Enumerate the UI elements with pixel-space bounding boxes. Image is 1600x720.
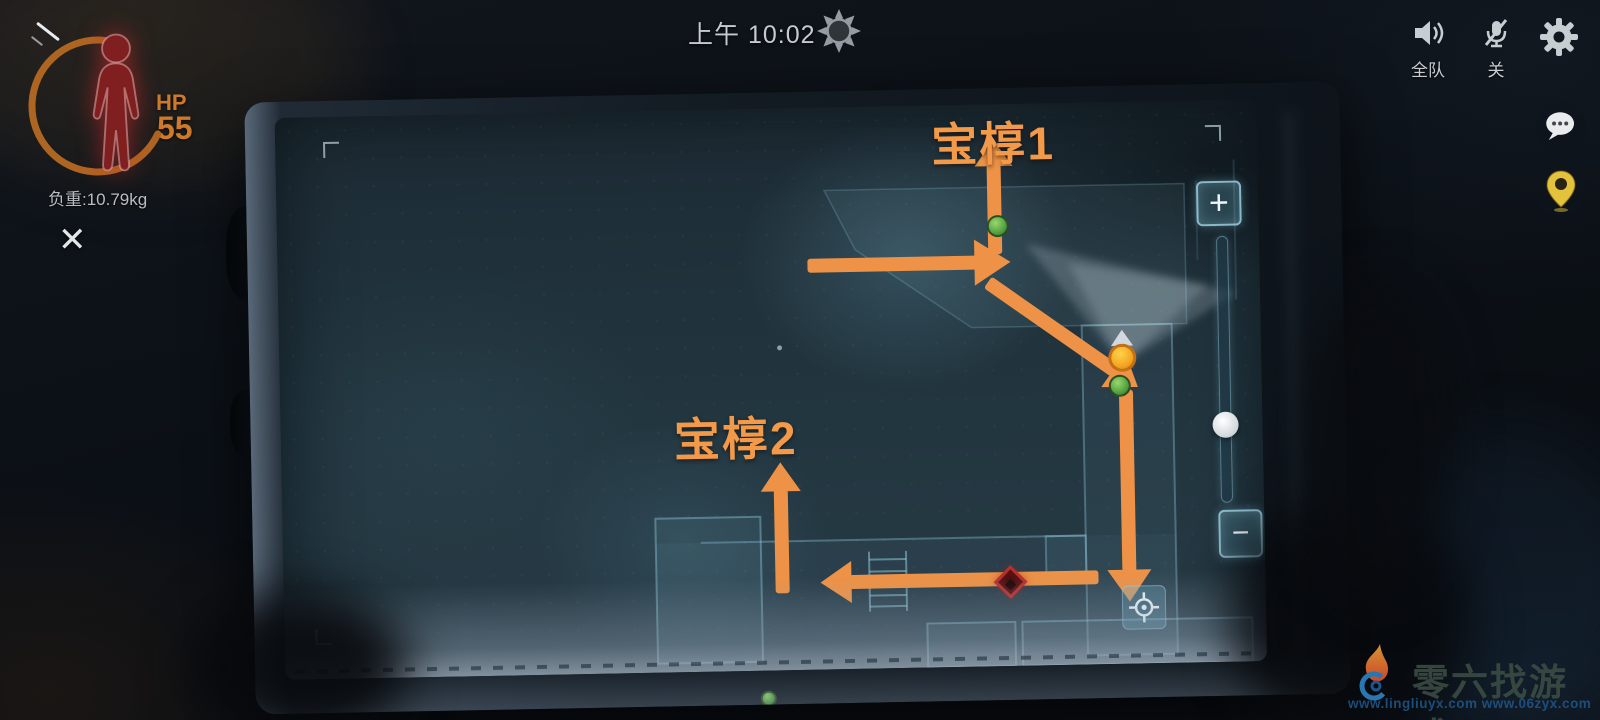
team-voice-button[interactable]: 全队 <box>1396 18 1460 81</box>
waypoint2-label: 宝椁2 <box>630 401 841 471</box>
body-status-figure <box>68 28 164 186</box>
speaker-icon <box>1412 18 1444 48</box>
map-corner-bracket-tl <box>323 142 339 158</box>
zoom-out-button[interactable]: − <box>1218 509 1263 558</box>
tablet-edge-streak <box>1284 112 1305 664</box>
weight-readout: 负重:10.79kg <box>48 185 208 210</box>
chat-button[interactable] <box>1536 102 1586 152</box>
mic-button[interactable]: 关 <box>1464 18 1528 81</box>
minus-icon: − <box>1232 516 1250 550</box>
map-tablet: 宝椁1 宝椁2 + − <box>244 82 1351 715</box>
map-pin-button[interactable] <box>1536 166 1586 216</box>
watermark-logo <box>1346 642 1406 704</box>
location-pin-icon <box>1544 169 1578 213</box>
settings-button[interactable] <box>1534 12 1584 62</box>
chat-bubble-icon <box>1541 109 1581 145</box>
close-button[interactable]: ✕ <box>58 220 87 260</box>
zoom-in-button[interactable]: + <box>1196 180 1242 226</box>
waypoint1-label: 宝椁1 <box>887 106 1098 176</box>
time-value: 10:02 <box>748 21 816 49</box>
time-display: 上午 10:02 <box>688 15 816 51</box>
time-period: 上午 <box>688 21 740 49</box>
sun-icon <box>816 8 862 54</box>
game-screen: 宝椁1 宝椁2 + − <box>0 0 1600 720</box>
map-center-dot <box>777 345 782 350</box>
mic-muted-icon <box>1481 18 1511 48</box>
team-voice-label: 全队 <box>1396 56 1460 81</box>
plus-icon: + <box>1209 184 1230 223</box>
gear-icon <box>1539 17 1579 57</box>
map-screen[interactable]: 宝椁1 宝椁2 + − <box>275 99 1268 680</box>
map-corner-bracket-tr <box>1205 125 1221 141</box>
watermark-urls: www.lingliuyx.com www.06zyx.com <box>1348 696 1598 711</box>
mic-state-label: 关 <box>1464 56 1528 81</box>
